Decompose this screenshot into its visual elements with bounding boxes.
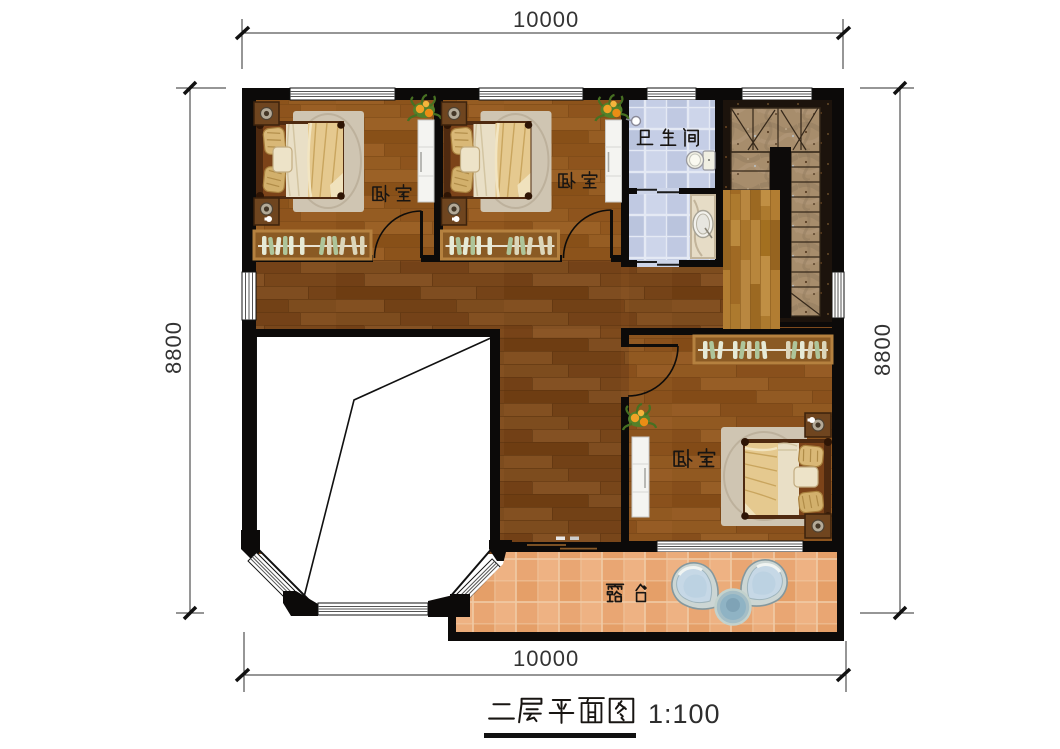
svg-text:8800: 8800 [161,321,186,374]
svg-text:10000: 10000 [513,7,579,32]
svg-text:1:100: 1:100 [648,699,721,729]
svg-text:10000: 10000 [513,646,579,671]
svg-text:8800: 8800 [870,323,895,376]
